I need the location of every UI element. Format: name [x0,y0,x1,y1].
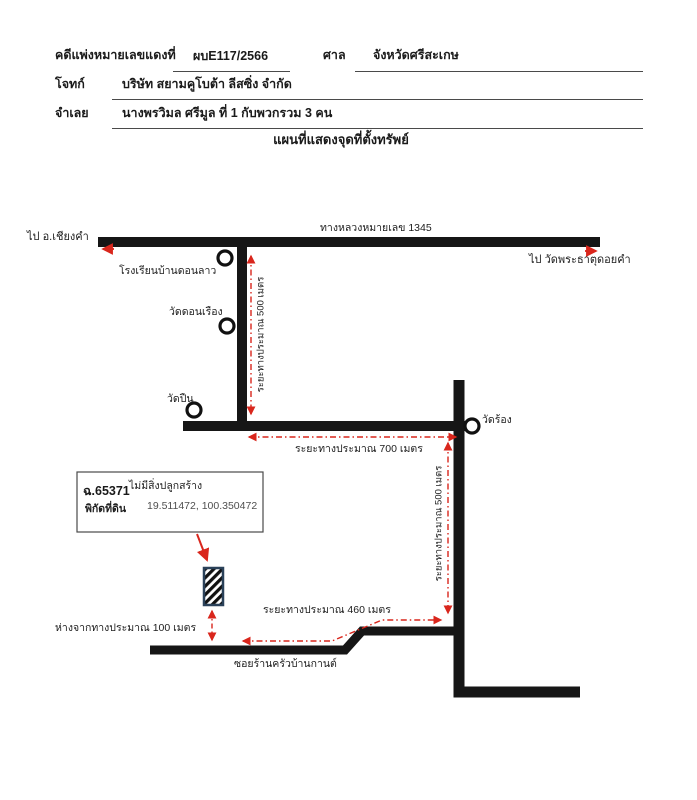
distance-left-500-label: ระยะทางประมาณ 500 เมตร [254,260,269,410]
distance-700-label: ระยะทางประมาณ 700 เมตร [295,440,423,457]
parcel-deed-number: ฉ.65371 [83,481,130,501]
site-map-drawing [0,0,697,800]
wat-rong-label: วัดร้อง [482,411,512,428]
wat-rong-marker-circle [465,419,479,433]
distance-100-label: ห่างจากทางประมาณ 100 เมตร [55,619,196,636]
parcel-note: ไม่มีสิ่งปลูกสร้าง [129,477,202,494]
wat-don-rueang-marker-circle [220,319,234,333]
dest-right-label: ไป วัดพระธาตุดอยคำ [529,250,631,268]
highway-label: ทางหลวงหมายเลข 1345 [320,219,432,236]
soi-label: ซอยร้านครัวบ้านกานต์ [234,655,337,672]
parcel-coordinates-value: 19.511472, 100.350472 [147,500,257,512]
wat-don-rueang-label: วัดดอนเรือง [169,303,223,320]
school-label: โรงเรียนบ้านดอนลาว [119,262,216,279]
distance-460-label: ระยะทางประมาณ 460 เมตร [263,601,391,618]
parcel-pointer-arrow [197,534,207,560]
wat-pin-label: วัดปืน [167,390,194,407]
property-hatch-marker [204,568,223,605]
court-map-document: คดีแพ่งหมายเลขแดงที่ ผบE117/2566 ศาล จัง… [0,0,697,800]
school-marker-circle [218,251,232,265]
dest-left-label: ไป อ.เชียงคำ [27,227,89,245]
distance-right-500-label: ระยะทางประมาณ 500 เมตร [432,449,447,599]
parcel-coordinates-label: พิกัดที่ดิน [85,500,126,517]
